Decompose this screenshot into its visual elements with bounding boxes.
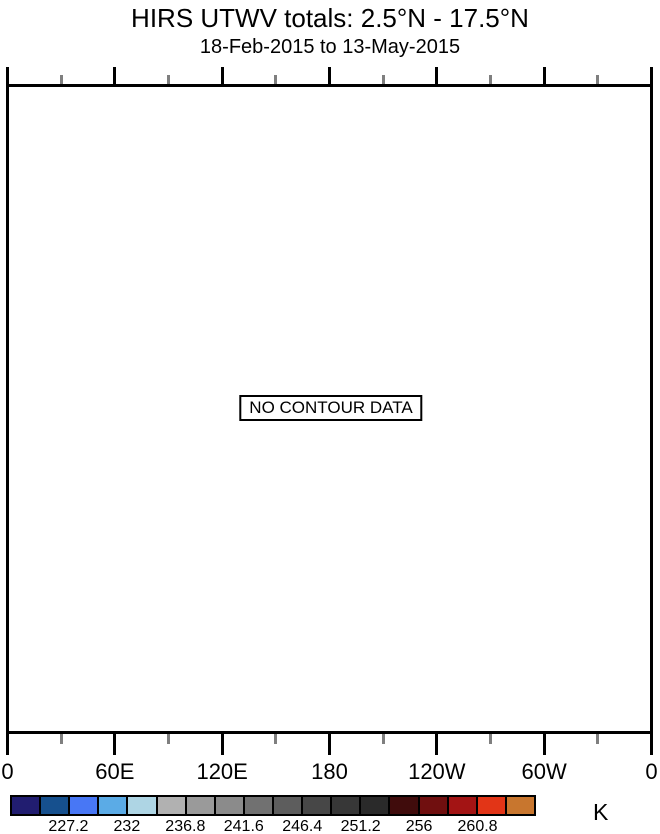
colorbar-cell — [388, 795, 419, 816]
plot-page: HIRS UTWV totals: 2.5°N - 17.5°N 18-Feb-… — [0, 0, 660, 834]
bottom-axis-minor-tick — [274, 734, 277, 744]
bottom-axis-minor-tick — [382, 734, 385, 744]
top-axis-major-tick — [435, 67, 438, 84]
top-axis-major-tick — [6, 67, 9, 84]
colorbar-cell — [359, 795, 390, 816]
colorbar-unit-label: K — [593, 799, 608, 826]
bottom-axis-major-tick — [221, 734, 224, 755]
colorbar-cell — [126, 795, 157, 816]
top-axis-minor-tick — [274, 75, 277, 84]
bottom-axis-major-tick — [543, 734, 546, 755]
top-axis-minor-tick — [382, 75, 385, 84]
colorbar-tick-label: 232 — [114, 818, 141, 834]
colorbar-tick-label: 256 — [406, 818, 433, 834]
colorbar-cell — [214, 795, 245, 816]
bottom-axis-minor-tick — [596, 734, 599, 744]
top-axis-minor-tick — [596, 75, 599, 84]
chart-title: HIRS UTWV totals: 2.5°N - 17.5°N — [0, 3, 660, 34]
colorbar-tick-label: 227.2 — [48, 818, 88, 834]
top-axis-minor-tick — [60, 75, 63, 84]
x-axis-tick-label: 0 — [645, 759, 657, 785]
top-axis-major-tick — [650, 67, 653, 84]
bottom-axis-minor-tick — [167, 734, 170, 744]
no-contour-data-box: NO CONTOUR DATA — [239, 395, 422, 421]
colorbar-tick-label: 241.6 — [224, 818, 264, 834]
bottom-axis-major-tick — [113, 734, 116, 755]
colorbar-cell — [68, 795, 99, 816]
colorbar-cell — [156, 795, 187, 816]
colorbar-tick-label: 251.2 — [341, 818, 381, 834]
x-axis-tick-label: 60E — [95, 759, 134, 785]
colorbar-cell — [185, 795, 216, 816]
bottom-axis-major-tick — [328, 734, 331, 755]
chart-subtitle: 18-Feb-2015 to 13-May-2015 — [0, 36, 660, 59]
colorbar-cell — [301, 795, 332, 816]
top-axis-major-tick — [221, 67, 224, 84]
colorbar-cell — [505, 795, 536, 816]
x-axis-tick-label: 0 — [1, 759, 13, 785]
x-axis-tick-label: 120W — [408, 759, 465, 785]
top-axis-major-tick — [543, 67, 546, 84]
top-axis-major-tick — [328, 67, 331, 84]
x-axis-tick-label: 120E — [196, 759, 247, 785]
x-axis-tick-label: 180 — [311, 759, 348, 785]
colorbar-tick-label: 236.8 — [165, 818, 205, 834]
colorbar-cell — [476, 795, 507, 816]
top-axis-major-tick — [113, 67, 116, 84]
colorbar-cell — [10, 795, 41, 816]
colorbar-cell — [39, 795, 70, 816]
colorbar-cell — [97, 795, 128, 816]
bottom-axis-minor-tick — [60, 734, 63, 744]
bottom-axis-major-tick — [6, 734, 9, 755]
x-axis-tick-label: 60W — [522, 759, 567, 785]
colorbar-tick-label: 260.8 — [458, 818, 498, 834]
bottom-axis-minor-tick — [489, 734, 492, 744]
top-axis-minor-tick — [489, 75, 492, 84]
colorbar-cell — [330, 795, 361, 816]
colorbar-cell — [418, 795, 449, 816]
top-axis-minor-tick — [167, 75, 170, 84]
colorbar — [10, 795, 536, 816]
bottom-axis-major-tick — [650, 734, 653, 755]
colorbar-tick-label: 246.4 — [282, 818, 322, 834]
colorbar-cell — [272, 795, 303, 816]
colorbar-cell — [447, 795, 478, 816]
bottom-axis-major-tick — [435, 734, 438, 755]
colorbar-cell — [243, 795, 274, 816]
